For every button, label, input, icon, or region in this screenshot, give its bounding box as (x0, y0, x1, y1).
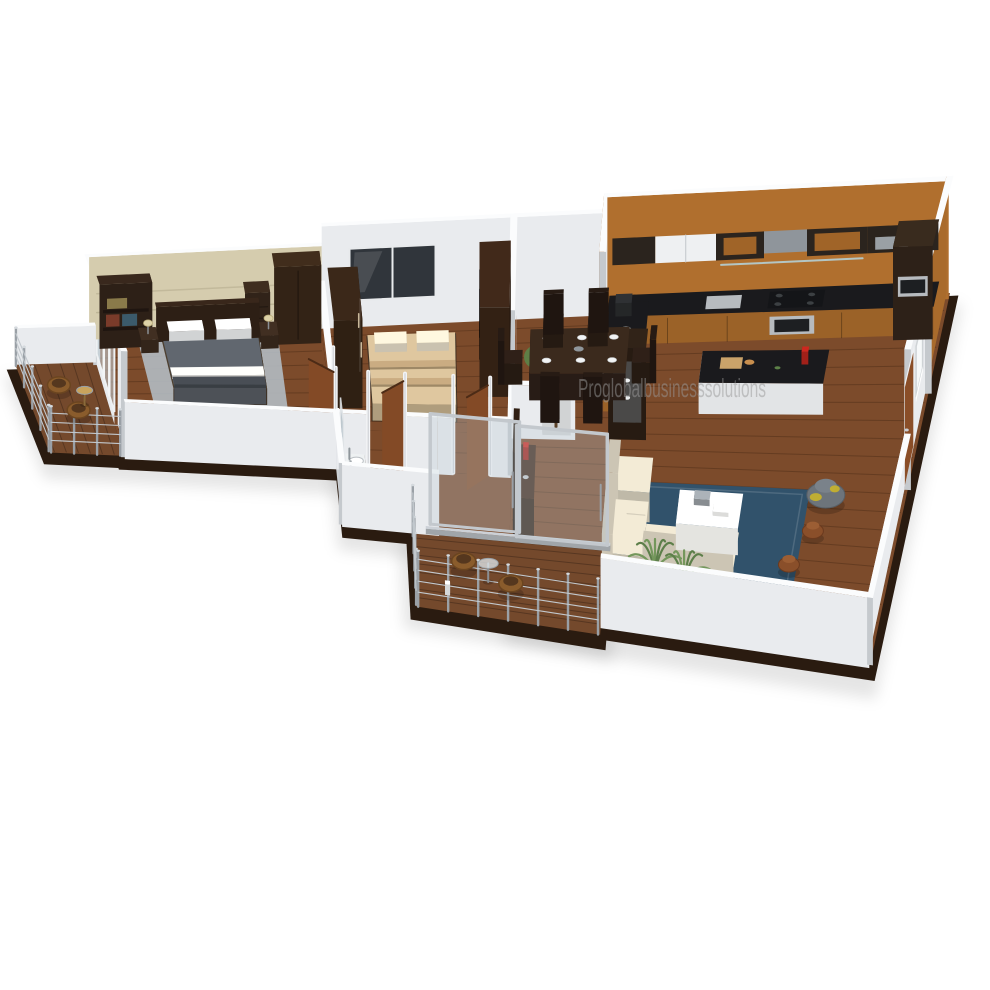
master-wardrobe (272, 251, 321, 345)
glass-slider (430, 414, 519, 533)
bottle (445, 580, 450, 595)
coffee-maker (615, 294, 632, 317)
watermark-text: Proglobalbusinesssolutions (578, 373, 766, 403)
sink (705, 295, 742, 309)
master-south-wall (124, 399, 337, 469)
floor-plan-render: Proglobalbusinesssolutions (0, 0, 990, 990)
glass-slider (517, 426, 608, 546)
apartment-model (4, 176, 963, 700)
pillows (374, 331, 407, 352)
cooker-hood (764, 229, 807, 253)
red-bottle (802, 347, 810, 365)
bathroom-south-wall (342, 461, 439, 536)
floor-plan-svg: Proglobalbusinesssolutions (0, 0, 990, 990)
upper-cabinet-dark (612, 237, 655, 266)
pillows (167, 320, 204, 341)
